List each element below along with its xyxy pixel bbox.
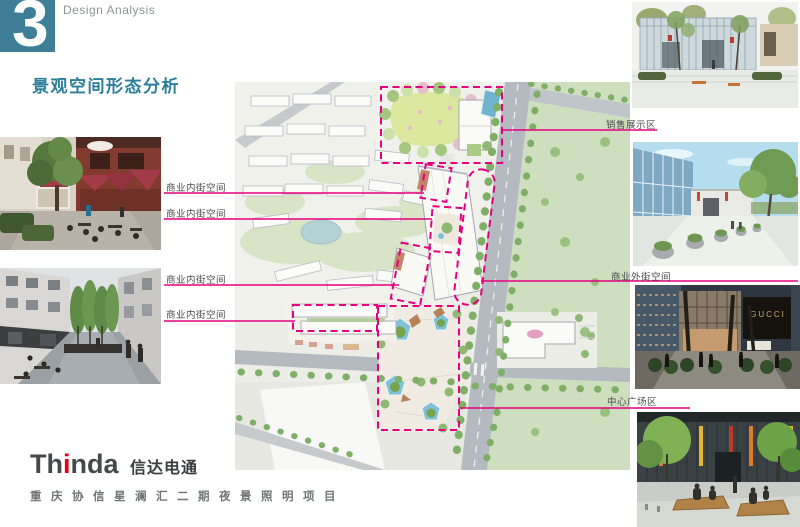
- photo-glass-pavilion: [632, 2, 798, 108]
- photo-pedestrian-street-image: [0, 268, 161, 384]
- photo-night-street-gucci-image: GUCCI: [635, 285, 800, 389]
- logo-english: Thinda: [30, 449, 119, 479]
- pond: [301, 220, 341, 244]
- logo-en-part2: i: [63, 449, 71, 479]
- photo-mall-street-planters: [633, 142, 798, 266]
- logo-en-part3: nda: [71, 449, 119, 479]
- photo-pedestrian-street: [0, 268, 161, 384]
- section-label: Design Analysis: [63, 3, 155, 17]
- slide: 3 Design Analysis 景观空间形态分析: [0, 0, 800, 527]
- photo-colorful-facade-plaza-image: [637, 412, 800, 527]
- section-number-badge: 3: [0, 0, 55, 52]
- label-inner-street-4: 商业内街空间: [166, 307, 226, 321]
- label-outer-street: 商业外街空间: [611, 269, 671, 283]
- company-logo: Thinda 信达电通: [30, 449, 198, 480]
- page-title: 景观空间形态分析: [32, 72, 180, 97]
- label-inner-street-2: 商业内街空间: [166, 206, 226, 220]
- photo-colorful-facade-plaza: [637, 412, 800, 527]
- photo-mall-street-planters-image: [633, 142, 798, 266]
- label-inner-street-3: 商业内街空间: [166, 272, 226, 286]
- site-plan-map: [235, 82, 630, 470]
- photo-cafe-street: [0, 137, 161, 250]
- label-inner-street-1: 商业内街空间: [166, 180, 226, 194]
- gucci-sign-text: GUCCI: [750, 310, 786, 319]
- section-number: 3: [12, 0, 49, 56]
- photo-glass-pavilion-image: [632, 2, 798, 108]
- photo-night-street-gucci: GUCCI: [635, 285, 800, 389]
- label-sales-display: 销售展示区: [606, 117, 656, 131]
- photo-cafe-street-image: [0, 137, 161, 250]
- site-plan-image: [235, 82, 630, 470]
- logo-chinese: 信达电通: [130, 460, 198, 477]
- project-title: 重庆协信星澜汇二期夜景照明项目: [30, 488, 345, 504]
- label-center-plaza: 中心广场区: [607, 394, 657, 408]
- logo-en-part1: Th: [30, 449, 63, 479]
